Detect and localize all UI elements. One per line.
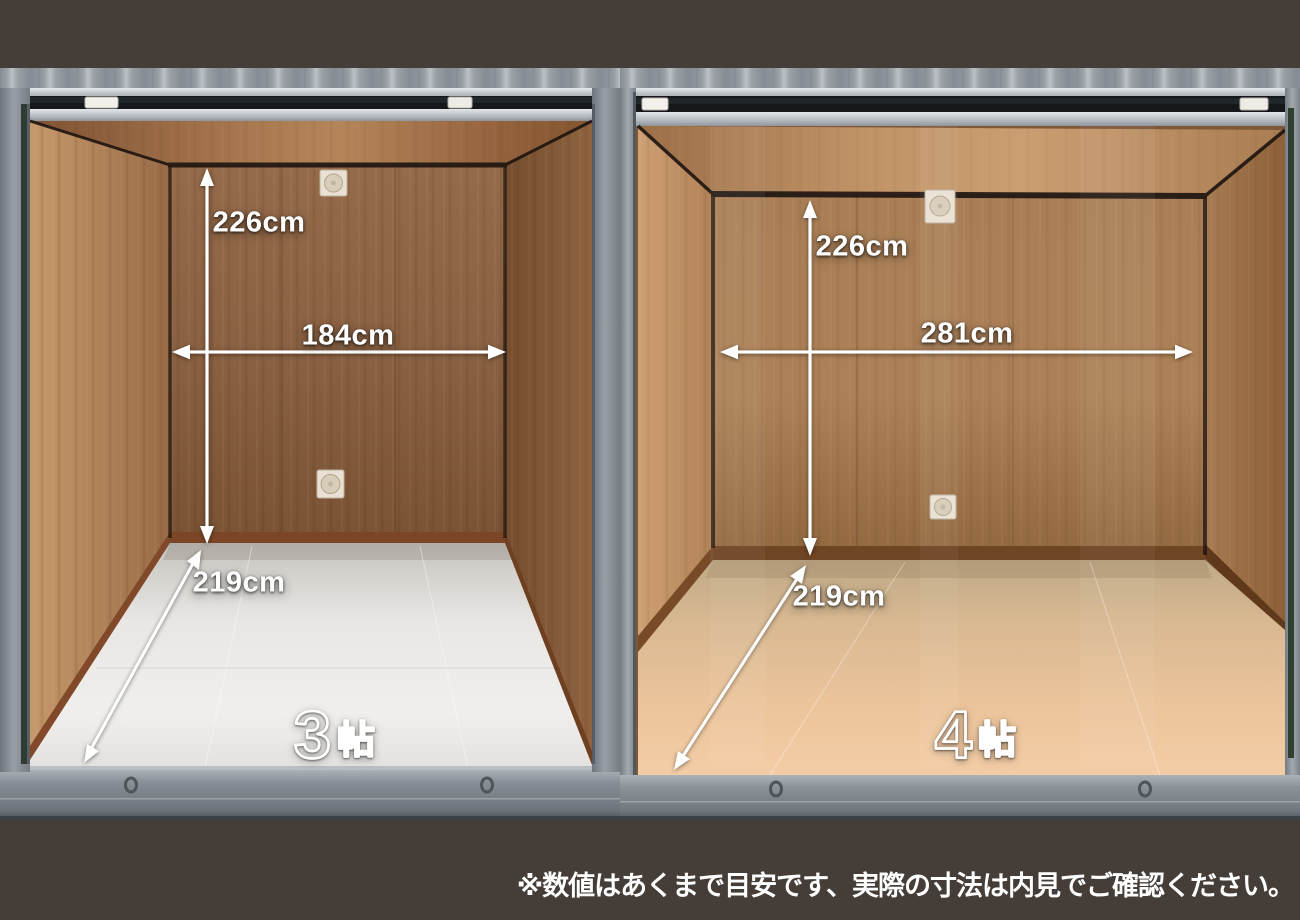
unit-4jo-shutter bbox=[636, 96, 1285, 126]
width-label-4jo: 281cm bbox=[921, 318, 1014, 351]
unit-3jo-shutter bbox=[30, 96, 592, 121]
depth-label-3jo: 219cm bbox=[193, 567, 286, 600]
disclaimer-footnote: ※数値はあくまで目安です、実際の寸法は内見でご確認ください。 bbox=[517, 864, 1294, 908]
unit-3jo-scene: 3 帖 bbox=[0, 68, 620, 820]
height-label-4jo: 226cm bbox=[816, 231, 909, 264]
photo-unit-3jo: 3 帖 226cm 184cm 219cm bbox=[0, 68, 620, 820]
size-number: 4 bbox=[935, 698, 972, 773]
storage-units-comparison-image: 3 帖 226cm 184cm 219cm bbox=[0, 0, 1300, 920]
size-suffix: 帖 bbox=[337, 720, 375, 762]
depth-label-4jo: 219cm bbox=[793, 581, 886, 614]
width-label-3jo: 184cm bbox=[302, 320, 395, 353]
size-number: 3 bbox=[294, 698, 331, 773]
height-label-3jo: 226cm bbox=[213, 207, 306, 240]
front-sill bbox=[0, 770, 620, 820]
unit-4jo-scene: 4 帖 bbox=[620, 68, 1300, 820]
size-suffix: 帖 bbox=[978, 720, 1016, 762]
front-sill bbox=[620, 775, 1300, 820]
photo-unit-4jo: 4 帖 226cm 281cm 219cm bbox=[620, 68, 1300, 820]
